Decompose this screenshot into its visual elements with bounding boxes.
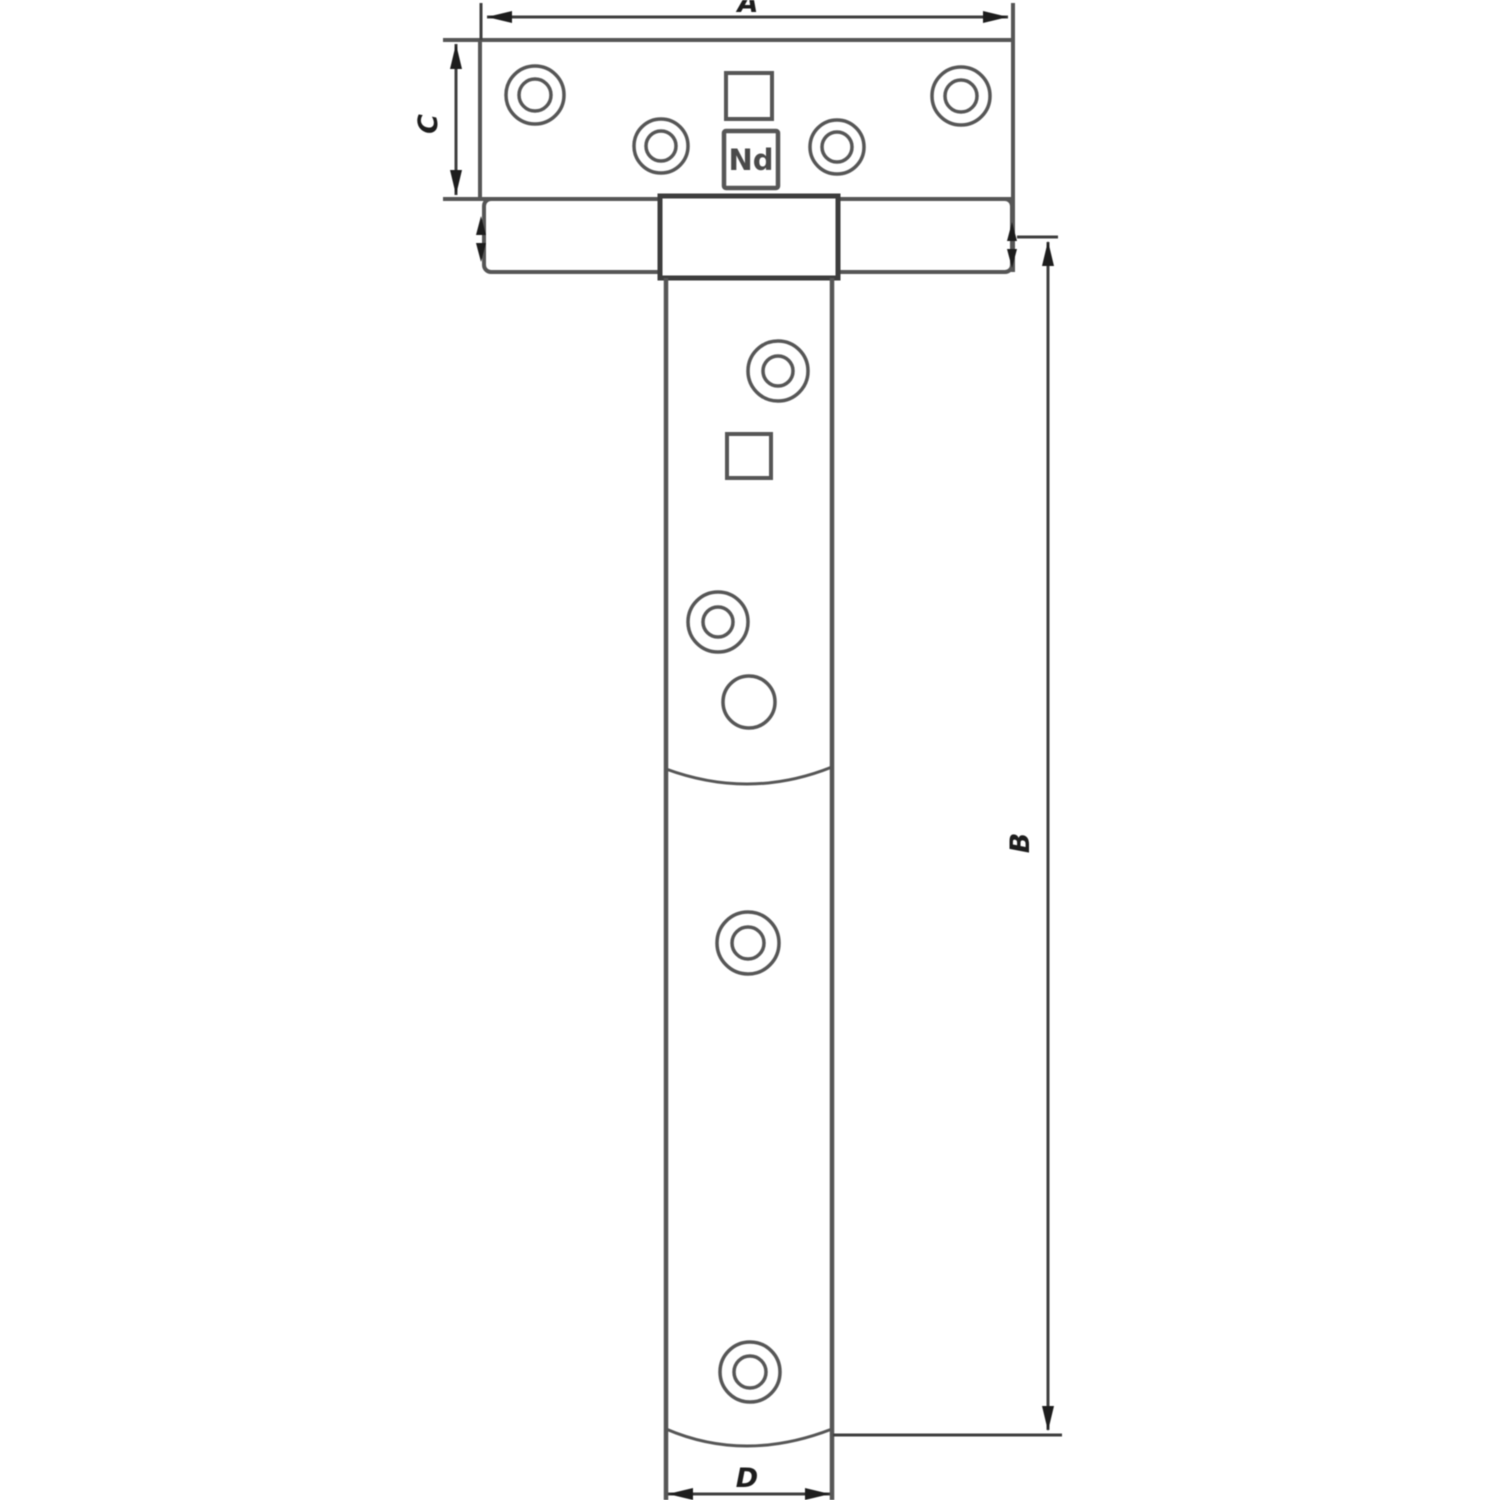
hole-inner-ring [646, 131, 676, 161]
screw-hole-outer-right [932, 67, 990, 125]
technical-drawing-page: Nd [0, 0, 1500, 1500]
strap-plain-hole [723, 676, 775, 728]
hole-outer-ring [748, 341, 808, 401]
plate-holes: Nd [506, 66, 990, 188]
arrowhead-right [805, 1488, 830, 1500]
hinge-knuckle [660, 196, 838, 278]
arrowhead-left [668, 1488, 693, 1500]
dimension-b: B [833, 237, 1062, 1435]
hole-inner-ring [945, 80, 977, 112]
arrowhead-right [983, 11, 1008, 23]
arrowhead-up [1042, 241, 1054, 266]
screw-hole-inner-left [634, 119, 688, 173]
strap-break-arc [666, 767, 832, 784]
arrowhead-down [450, 170, 462, 195]
hole-outer-ring [688, 592, 748, 652]
hole-outer-ring [634, 119, 688, 173]
hole-outer-ring [720, 1342, 780, 1402]
dimension-c: C [413, 44, 462, 195]
brand-mark-text: Nd [728, 143, 773, 177]
hole-inner-ring [519, 79, 551, 111]
dim-c-label: C [413, 114, 444, 134]
brand-mark-box: Nd [724, 131, 778, 188]
hole-inner-ring [734, 1356, 766, 1388]
hole-outer-ring [810, 120, 864, 174]
hole-outer-ring [506, 66, 564, 124]
screw-hole-outer-left [506, 66, 564, 124]
strap-screw-hole-4 [720, 1342, 780, 1402]
strap-screw-hole-2 [688, 592, 748, 652]
strap [666, 278, 832, 1500]
arrowhead-up [450, 44, 462, 69]
hole-outer-ring [717, 912, 779, 974]
square-hole-plate [726, 73, 772, 119]
strap-screw-hole-1 [748, 341, 808, 401]
hole-inner-ring [822, 132, 852, 162]
hole-inner-ring [732, 927, 764, 959]
t-hinge-technical-drawing: Nd [0, 0, 1500, 1500]
square-hole-strap [727, 434, 771, 478]
strap-bottom-arc [666, 1429, 832, 1446]
dimension-d: D [668, 1463, 830, 1500]
strap-screw-hole-3 [717, 912, 779, 974]
arrowhead-down [1042, 1406, 1054, 1431]
hole-inner-ring [703, 607, 733, 637]
dim-d-label: D [736, 1463, 758, 1494]
hole-inner-ring [763, 356, 793, 386]
screw-hole-inner-right [810, 120, 864, 174]
arrowhead-left [487, 11, 512, 23]
hole-outer-ring [932, 67, 990, 125]
dim-a-label: A [736, 0, 759, 19]
dim-b-label: B [1005, 833, 1036, 854]
dimension-a: A [481, 0, 1008, 40]
